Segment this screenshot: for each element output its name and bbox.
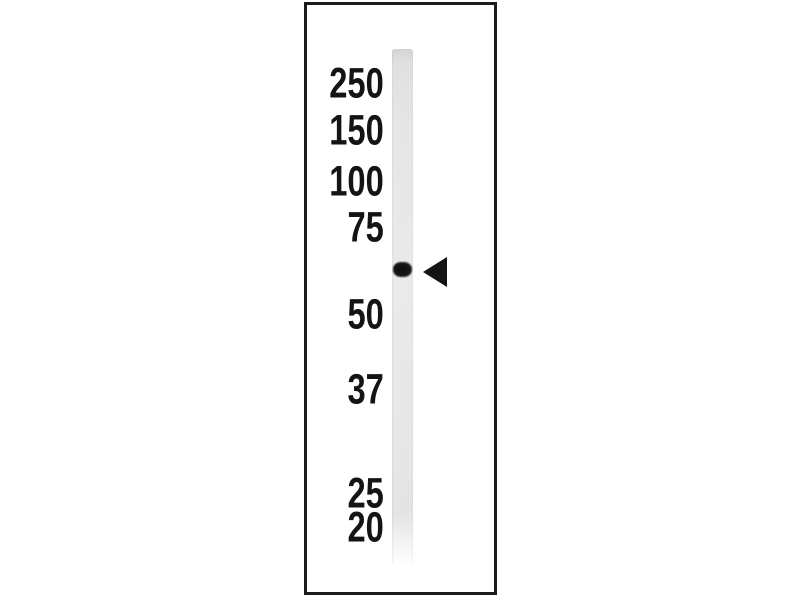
mw-marker-20: 20: [348, 507, 384, 550]
band-pointer-arrowhead-icon: [423, 257, 447, 287]
mw-marker-37: 37: [348, 369, 384, 412]
blot-lane: [392, 49, 413, 565]
mw-marker-150: 150: [329, 110, 384, 153]
protein-band: [393, 262, 412, 277]
mw-marker-250: 250: [329, 63, 384, 106]
mw-marker-100: 100: [329, 161, 384, 204]
mw-marker-50: 50: [348, 294, 384, 337]
western-blot-figure: 250 150 100 75 50 37 25 20: [0, 0, 800, 600]
mw-marker-75: 75: [348, 207, 384, 250]
